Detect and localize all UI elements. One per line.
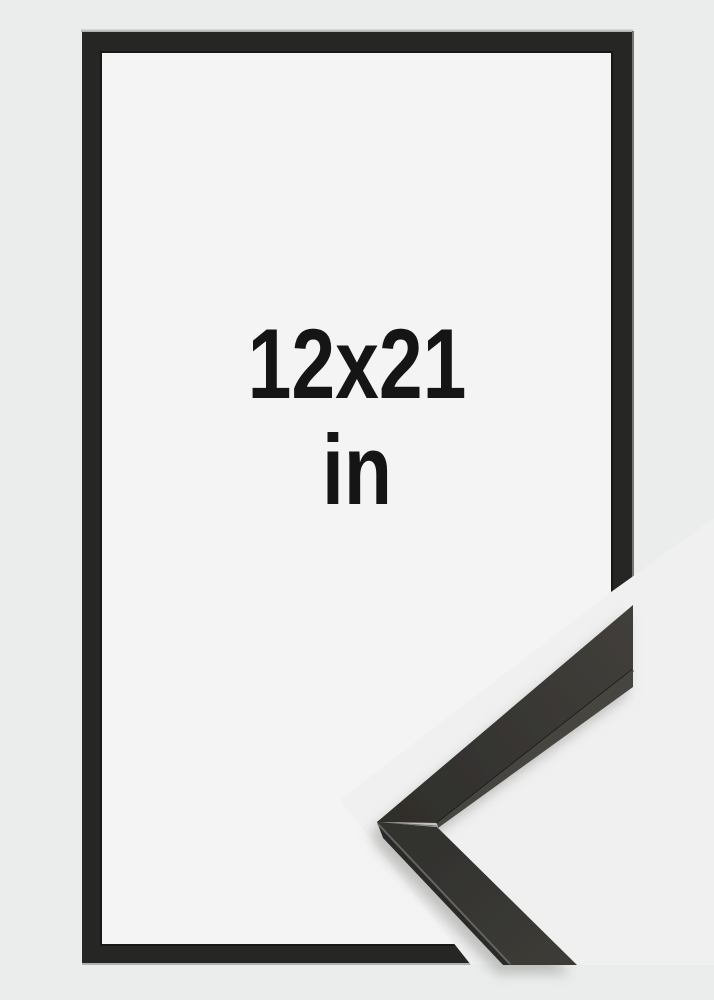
size-label-dimensions: 12x21 xyxy=(138,311,575,417)
product-image: 12x21 in xyxy=(0,0,714,1000)
size-label: 12x21 in xyxy=(138,311,575,523)
size-label-unit: in xyxy=(138,417,575,523)
